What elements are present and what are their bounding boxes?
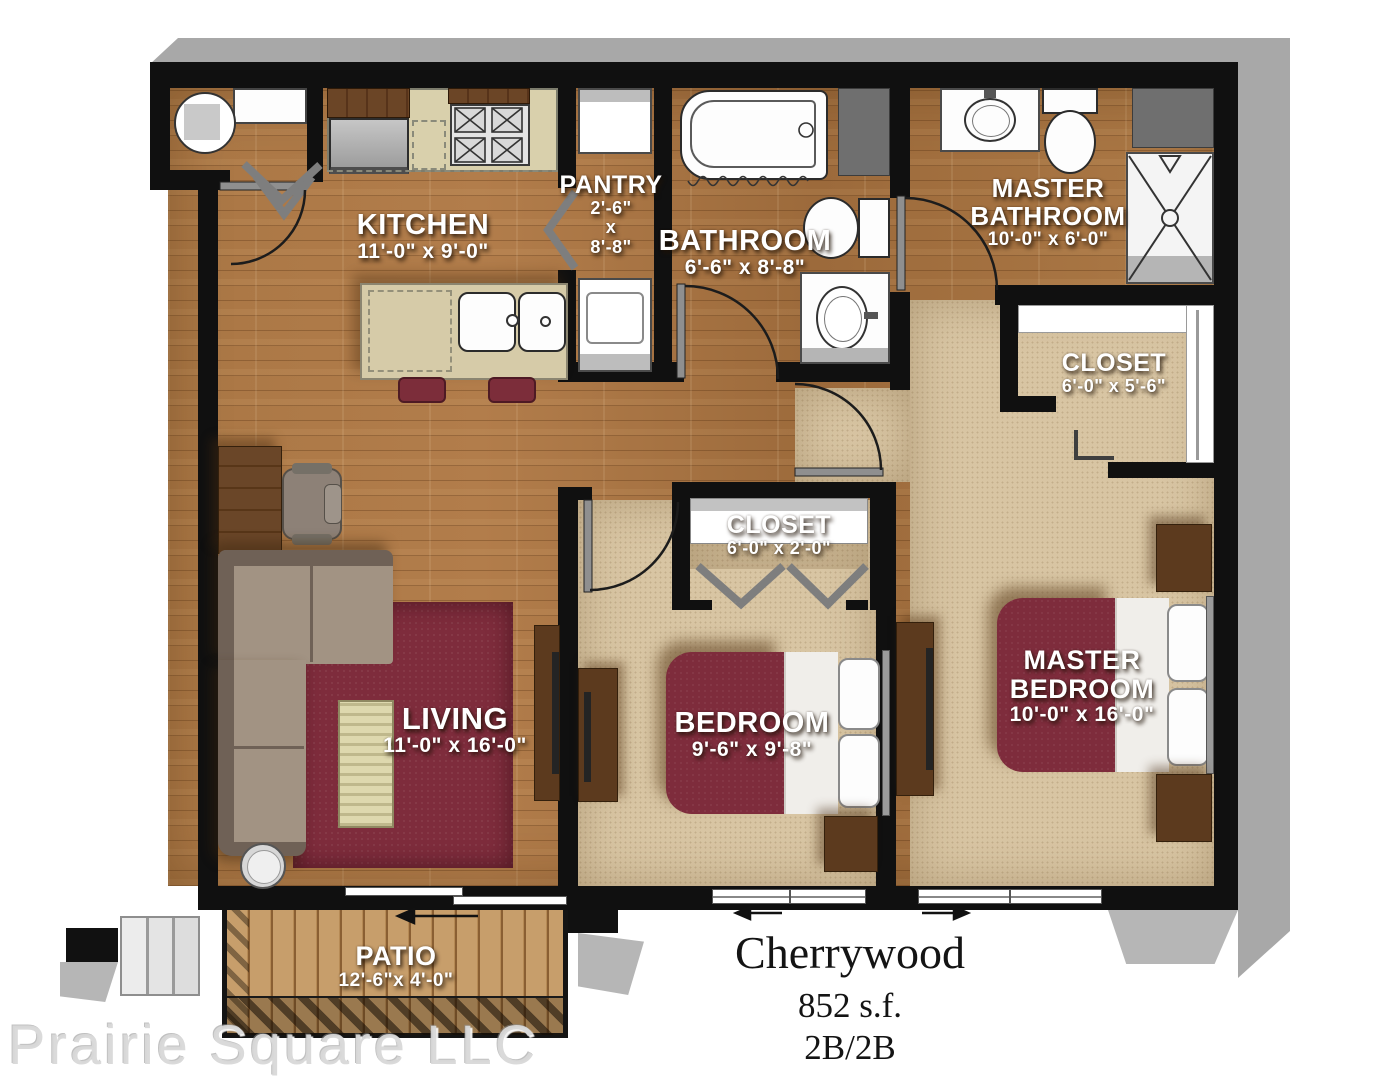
wall: [558, 487, 578, 886]
pillow: [838, 734, 880, 808]
room-label-hall-closet: CLOSET 6'-0" x 2'-0": [727, 512, 831, 558]
plan-title: Cherrywood: [735, 926, 965, 979]
nightstand: [1156, 524, 1212, 592]
bedroom-window: [712, 889, 866, 904]
room-label-master-bathroom: MASTER BATHROOM 10'-0" x 6'-0": [948, 174, 1148, 251]
room-label-master-closet: CLOSET 6'-0" x 5'-6": [1062, 350, 1166, 396]
bath-vanity: [800, 272, 890, 364]
kitchen-upper-cabinet: [448, 88, 530, 104]
room-label-master-bedroom: MASTER BEDROOM 10'-0" x 16'-0": [977, 646, 1187, 727]
master-bedroom-window: [918, 889, 1102, 904]
entry-shelf: [233, 88, 307, 124]
plumbing-chase: [838, 88, 890, 176]
wall: [672, 482, 690, 610]
steps-left: [120, 916, 200, 996]
nightstand: [1156, 774, 1212, 842]
pantry-shelf: [578, 88, 652, 154]
wall: [690, 600, 712, 610]
patio-slider-panel: [453, 896, 567, 905]
tv-icon: [584, 692, 591, 782]
pillow: [838, 658, 880, 730]
kitchen-upper-cabinet: [327, 88, 410, 118]
shadow-right: [1238, 38, 1290, 978]
wall: [198, 170, 218, 910]
toilet-icon: [1044, 110, 1096, 174]
shadow-patio-right: [578, 933, 644, 995]
stove-icon: [450, 104, 530, 166]
room-label-bedroom: BEDROOM 9'-6" x 9'-8": [675, 708, 830, 762]
wall: [890, 88, 910, 198]
watermark: Prairie Square LLC: [8, 1012, 538, 1077]
wall: [1000, 305, 1018, 400]
toilet-icon: [858, 198, 890, 258]
floor-plan: KITCHEN 11'-0" x 9'-0" PANTRY 2'-6" x 8'…: [0, 0, 1398, 1080]
tv-icon: [552, 652, 559, 774]
room-label-pantry: PANTRY 2'-6" x 8'-8": [560, 172, 663, 257]
master-vanity: [940, 88, 1040, 152]
island-dishwasher: [368, 290, 452, 372]
room-label-bathroom: BATHROOM 6'-6" x 8'-8": [659, 226, 832, 280]
wall: [995, 285, 1214, 305]
wall: [1000, 396, 1056, 412]
counter-edge-dashed: [327, 170, 558, 172]
wall: [890, 292, 910, 390]
wall: [846, 600, 868, 610]
wall: [672, 482, 888, 498]
shadow-top: [150, 38, 1290, 64]
floor-carpet-corridor: [795, 388, 910, 482]
wall: [1214, 62, 1238, 910]
wall-stub-patio-left: [66, 928, 118, 962]
room-label-kitchen: KITCHEN 11'-0" x 9'-0": [357, 210, 489, 264]
nightstand: [824, 816, 878, 872]
closet-shelf: [1186, 305, 1214, 463]
wall: [150, 62, 1238, 88]
headboard: [1206, 596, 1214, 774]
stool: [398, 377, 446, 403]
desk: [218, 446, 282, 554]
side-table: [240, 843, 286, 889]
wall: [150, 170, 230, 190]
fridge-icon: [329, 118, 409, 174]
plumbing-chase: [1132, 88, 1214, 148]
plan-config: 2B/2B: [804, 1028, 895, 1068]
pantry-shelf: [578, 278, 652, 372]
bathtub-icon: [680, 90, 828, 180]
stool: [488, 377, 536, 403]
closet-shelf: [1018, 305, 1214, 333]
sofa: [218, 660, 306, 856]
desk-chair: [282, 468, 342, 540]
headboard: [882, 650, 890, 816]
faucet-icon: [540, 316, 551, 327]
wall: [1108, 462, 1214, 478]
patio-slider-panel: [345, 887, 463, 896]
sofa: [218, 550, 393, 664]
shadow-bottom-right: [1108, 910, 1238, 964]
entry-round-table: [174, 92, 236, 154]
room-label-patio: PATIO 12'-6"x 4'-0": [339, 942, 454, 992]
faucet-icon: [506, 314, 519, 327]
wall: [307, 88, 323, 182]
tv-icon: [926, 648, 933, 770]
shadow-patio-left: [60, 962, 118, 1002]
plan-area: 852 s.f.: [798, 986, 902, 1026]
dishwasher-cabinet: [412, 120, 446, 170]
room-label-living: LIVING 11'-0" x 16'-0": [383, 702, 527, 758]
closet-rod: [1196, 310, 1199, 460]
